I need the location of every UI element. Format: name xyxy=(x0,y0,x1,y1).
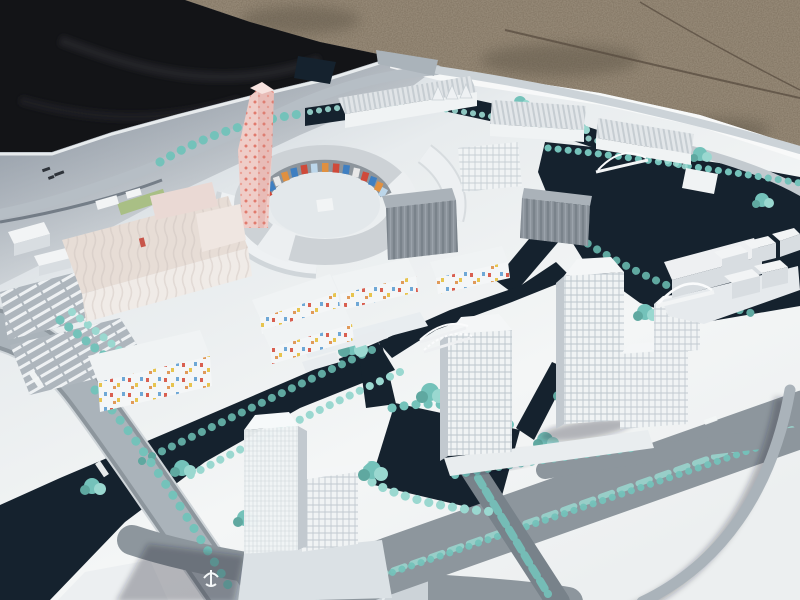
white-mid-block xyxy=(458,142,522,192)
glass-block xyxy=(520,188,592,246)
sawtooth-sheds xyxy=(432,84,472,100)
tower-b xyxy=(556,257,624,429)
model-photo-canvas xyxy=(0,0,800,600)
ring-gap-southwest xyxy=(265,235,292,247)
courtyard-pavilion xyxy=(316,198,334,212)
tower-a xyxy=(440,314,512,461)
model-photo xyxy=(0,0,800,600)
glass-block xyxy=(382,188,458,260)
ribbed-slab xyxy=(490,100,586,142)
